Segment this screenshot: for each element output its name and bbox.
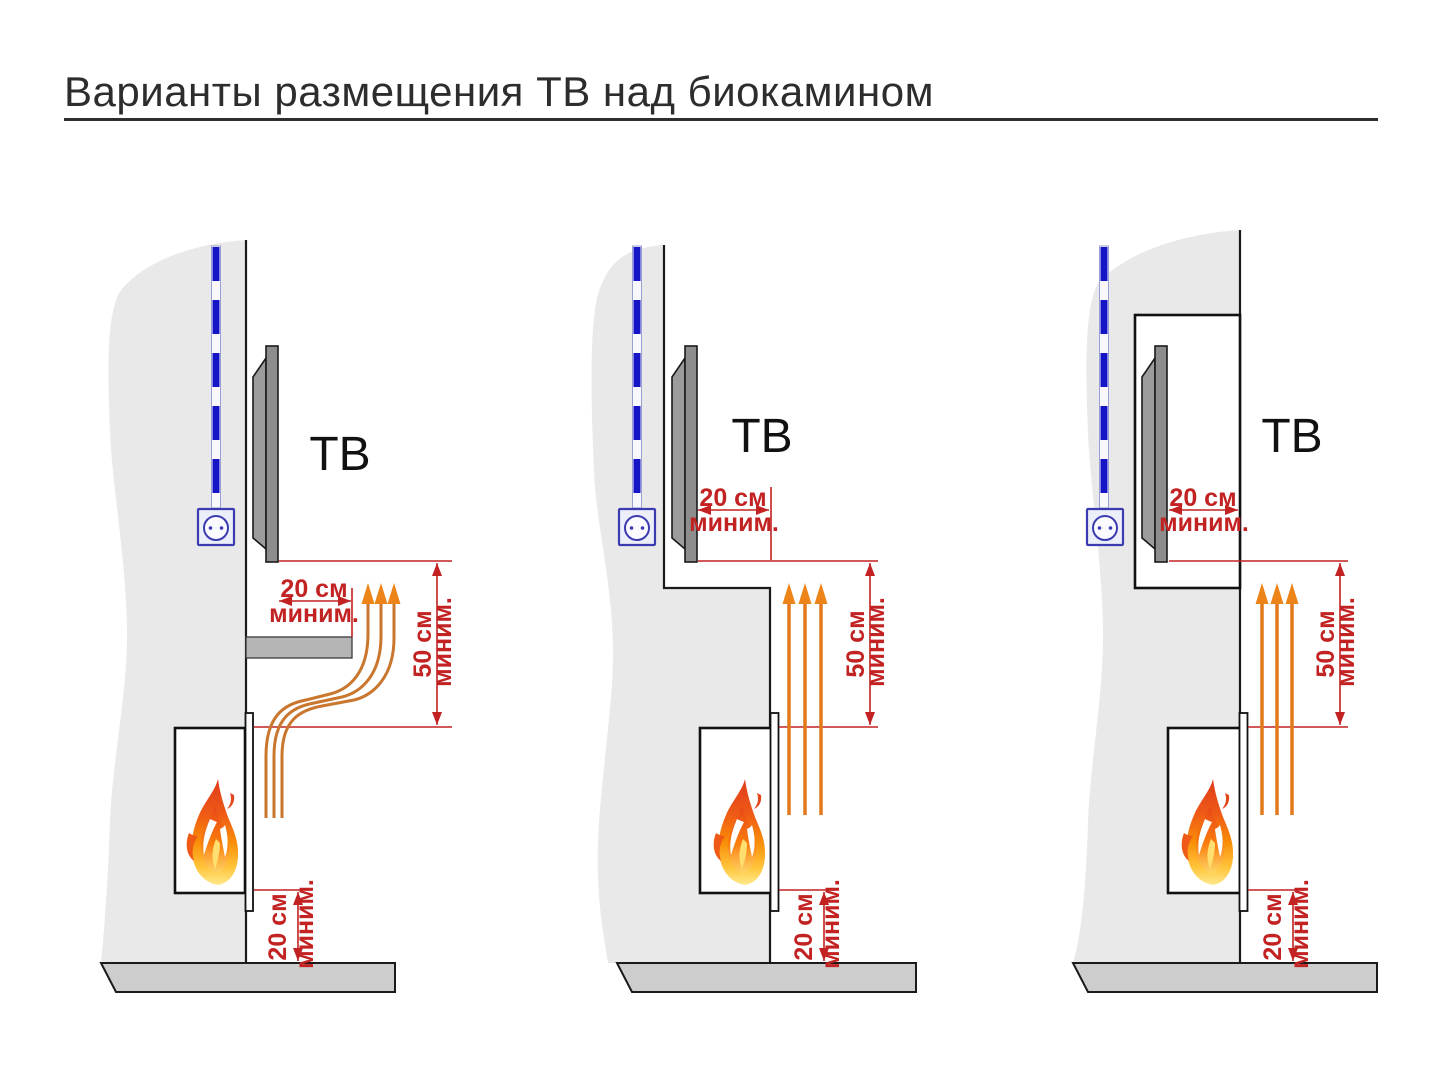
dim-qualifier: миним. <box>1332 597 1360 687</box>
floor <box>617 963 916 992</box>
power-cable <box>1100 246 1109 508</box>
heat-arrowhead <box>362 583 375 604</box>
dim-value: 20 см <box>280 575 347 603</box>
heat-arrowhead <box>783 583 796 604</box>
heat-tube <box>282 603 394 818</box>
arrowhead-up <box>865 563 875 576</box>
dim-value: 20 см <box>699 484 766 512</box>
dim-side-20cm: 20 см миним. <box>1159 484 1249 537</box>
dim-qualifier: миним. <box>1159 509 1249 537</box>
arrowhead-down <box>432 712 442 725</box>
floor <box>1073 963 1377 992</box>
tv-side-view <box>253 346 278 562</box>
dim-value: 20 см <box>264 893 292 960</box>
dim-floor-20cm: 20 см миним. <box>254 879 319 969</box>
dim-qualifier: миним. <box>689 509 779 537</box>
dim-value: 20 см <box>1259 893 1287 960</box>
power-cable <box>633 246 642 508</box>
arrowhead-down <box>1335 712 1345 725</box>
power-cable <box>212 246 221 508</box>
heat-flow-arrows <box>1256 583 1299 815</box>
variant-3-niche-tv: 20 см миним. 50 см миним. 20 см миним. <box>1073 230 1377 992</box>
arrowhead-up <box>1335 563 1345 576</box>
tv-label: ТВ <box>731 410 792 463</box>
dim-floor-20cm: 20 см миним. <box>1248 879 1314 969</box>
variant-2-recessed-tv: 20 см миним. 50 см миним. 20 см миним. <box>592 245 917 992</box>
tv-label: ТВ <box>309 428 370 481</box>
power-outlet-icon <box>619 509 655 545</box>
heat-arrowhead <box>815 583 828 604</box>
dim-qualifier: миним. <box>269 600 359 628</box>
dim-qualifier: миним. <box>429 597 457 687</box>
dim-value: 20 см <box>1169 484 1236 512</box>
heat-arrowhead <box>1256 583 1269 604</box>
protective-shelf <box>246 637 352 658</box>
dim-qualifier: миним. <box>817 879 845 969</box>
fireplace-glass <box>1240 713 1248 911</box>
dim-floor-20cm: 20 см миним. <box>779 879 845 969</box>
dim-qualifier: миним. <box>1286 879 1314 969</box>
fireplace-tv-placement-diagram: 20 см миним. 50 см миним. 20 см миним. <box>0 0 1440 1080</box>
heat-arrowhead <box>388 583 401 604</box>
floor <box>101 963 395 992</box>
power-outlet-icon <box>198 509 234 545</box>
arrowhead-down <box>865 712 875 725</box>
heat-arrowhead <box>799 583 812 604</box>
power-outlet-icon <box>1087 509 1123 545</box>
fireplace-glass <box>246 713 254 911</box>
heat-tube <box>274 603 381 818</box>
dim-qualifier: миним. <box>291 879 319 969</box>
tv-label: ТВ <box>1261 410 1322 463</box>
heat-flow-arrows <box>783 583 828 815</box>
dim-value: 20 см <box>790 893 818 960</box>
fireplace-glass <box>771 713 779 911</box>
dim-side-20cm: 20 см миним. <box>689 484 779 560</box>
heat-arrowhead <box>375 583 388 604</box>
dim-qualifier: миним. <box>862 597 890 687</box>
arrowhead-up <box>432 563 442 576</box>
heat-arrowhead <box>1286 583 1299 604</box>
variant-1-shelf: 20 см миним. 50 см миним. 20 см миним. <box>101 240 457 992</box>
heat-arrowhead <box>1271 583 1284 604</box>
